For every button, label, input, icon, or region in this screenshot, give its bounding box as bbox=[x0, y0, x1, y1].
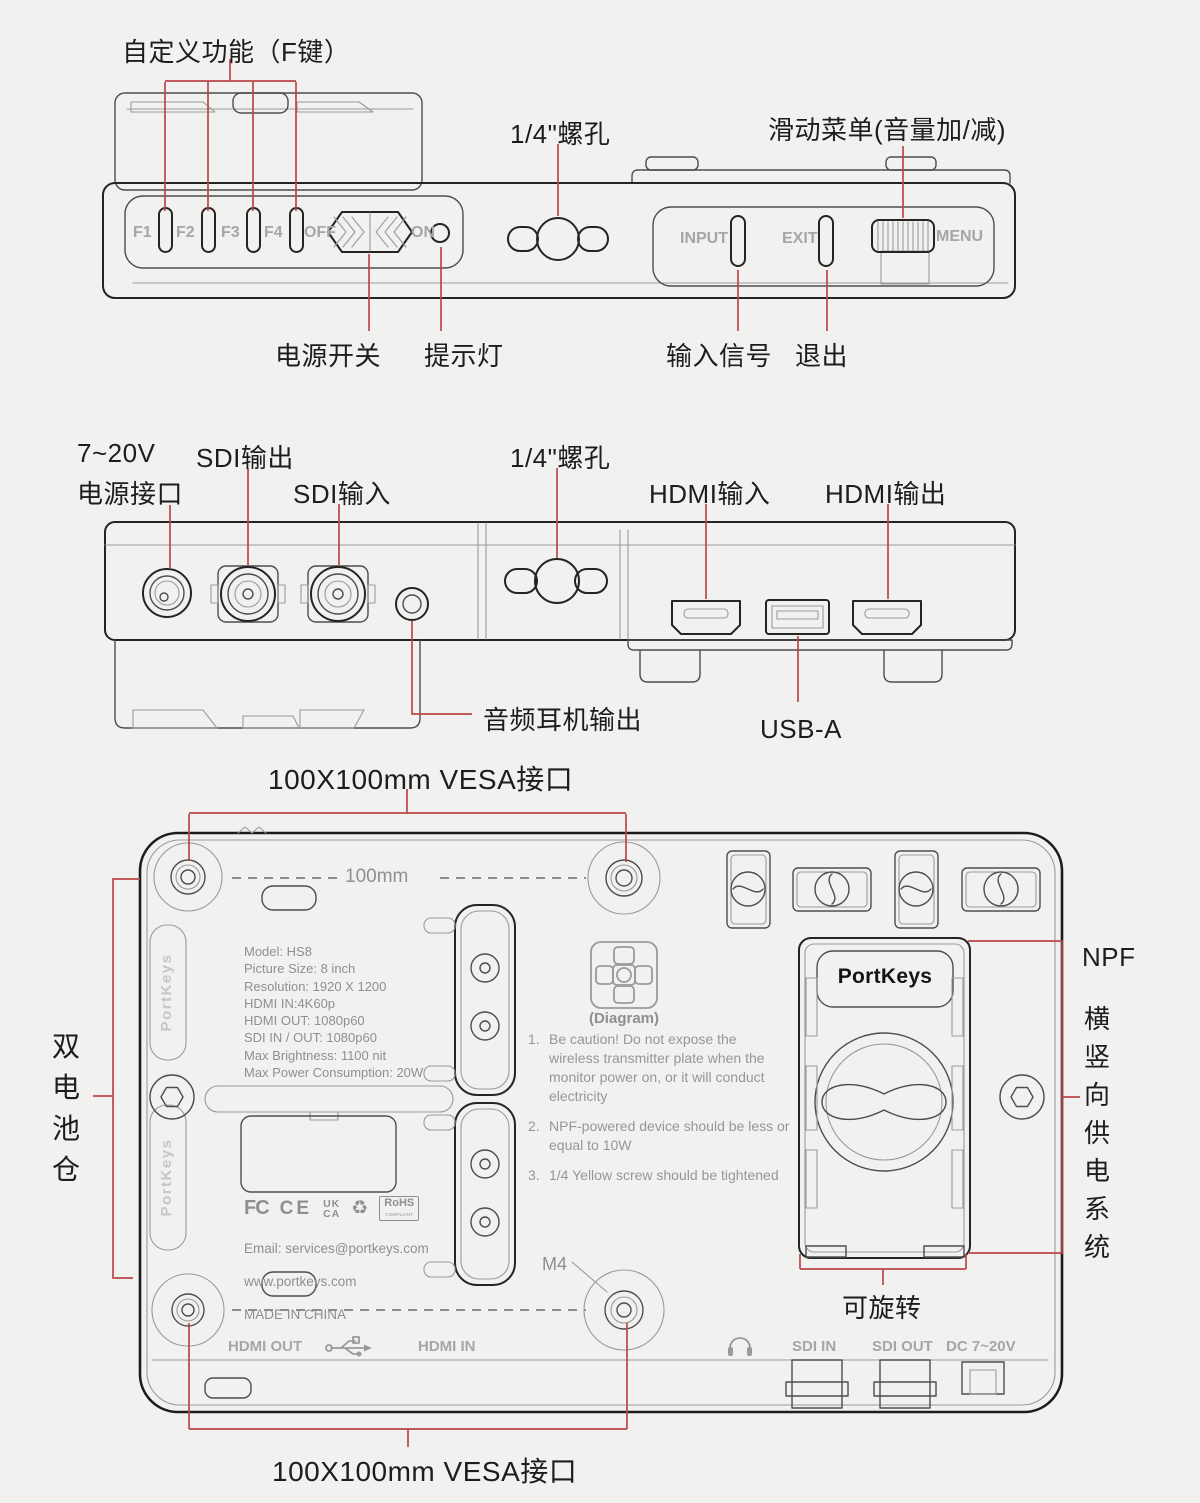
contact-site: www.portkeys.com bbox=[244, 1274, 429, 1291]
f2-label: F2 bbox=[176, 224, 195, 242]
port-sdi-out: SDI OUT bbox=[872, 1338, 933, 1355]
plate-brand-logo: PortKeys bbox=[825, 965, 945, 989]
vesa-hole-bottom-left bbox=[152, 1274, 224, 1346]
port-dc: DC 7~20V bbox=[946, 1338, 1016, 1355]
label-vesa-bottom: 100X100mm VESA接口 bbox=[272, 1450, 577, 1490]
label-headphone: 音频耳机输出 bbox=[483, 700, 642, 737]
note-text: Be caution! Do not expose the wireless t… bbox=[549, 1030, 790, 1106]
spec-line: Max Brightness: 1100 nit bbox=[244, 1047, 423, 1064]
usb-icon bbox=[326, 1337, 372, 1357]
input-button bbox=[731, 216, 745, 266]
contact-email: Email: services@portkeys.com bbox=[244, 1241, 429, 1258]
label-power-port: 电源接口 bbox=[77, 474, 183, 511]
bay-brand-logo: PortKeys bbox=[158, 927, 175, 1058]
rotor-disc bbox=[815, 1033, 953, 1171]
label-battery-bays: 双电池仓 bbox=[50, 1026, 82, 1190]
recycle-icon: ♻ bbox=[351, 1197, 368, 1220]
vesa-top-bracket bbox=[189, 789, 626, 862]
input-label: INPUT bbox=[680, 230, 728, 248]
contact-block: Email: services@portkeys.com www.portkey… bbox=[244, 1224, 429, 1340]
diagram-caption: (Diagram) bbox=[576, 1010, 672, 1027]
label-screw-top: 1/4"螺孔 bbox=[510, 114, 610, 151]
spec-line: Model: HS8 bbox=[244, 943, 423, 960]
ce-mark: CE bbox=[280, 1198, 312, 1220]
menu-label: MENU bbox=[936, 228, 983, 246]
label-screw-mid: 1/4"螺孔 bbox=[510, 438, 610, 475]
quarter-screw-hole-mid bbox=[535, 559, 579, 603]
on-label: ON bbox=[411, 224, 435, 242]
battery-contacts-upper bbox=[455, 905, 515, 1095]
contact-origin: MADE IN CHINA bbox=[244, 1307, 429, 1324]
usb-a-port bbox=[766, 600, 829, 634]
top-foot bbox=[646, 157, 698, 170]
battery-latch-bar bbox=[205, 1086, 453, 1112]
battery-bay-bracket bbox=[93, 879, 140, 1278]
annotation-leader-lines bbox=[93, 59, 1080, 1447]
headphone-line bbox=[412, 621, 472, 714]
spec-line: HDMI OUT: 1080p60 bbox=[244, 1012, 423, 1029]
mid-foot bbox=[640, 650, 700, 682]
bottom-edge-view-art bbox=[105, 522, 1015, 728]
label-vesa-top: 100X100mm VESA接口 bbox=[268, 758, 573, 798]
label-slide-menu: 滑动菜单(音量加/减) bbox=[768, 110, 1006, 147]
exit-button bbox=[819, 216, 833, 266]
mount-slot-horizontal bbox=[962, 868, 1040, 911]
label-indicator: 提示灯 bbox=[424, 336, 504, 373]
vesa-hole-top-left bbox=[154, 843, 222, 911]
top-foot bbox=[886, 157, 936, 170]
f3-label: F3 bbox=[221, 224, 240, 242]
label-input-signal: 输入信号 bbox=[666, 336, 772, 373]
note-number: 1. bbox=[528, 1030, 542, 1106]
label-hdmi-out: HDMI输出 bbox=[825, 474, 946, 511]
label-exit-cn: 退出 bbox=[795, 336, 848, 373]
sdi-in-connector bbox=[311, 567, 365, 621]
wireless-pad-icon bbox=[591, 942, 657, 1008]
spec-line: Max Power Consumption: 20W bbox=[244, 1064, 423, 1081]
quarter-screw-hole-top bbox=[537, 218, 579, 260]
spec-line: SDI IN / OUT: 1080p60 bbox=[244, 1029, 423, 1046]
battery-pack-outline bbox=[115, 93, 422, 190]
label-sdi-in: SDI输入 bbox=[293, 474, 391, 511]
spec-line: HDMI IN:4K60p bbox=[244, 995, 423, 1012]
fcc-mark: FC bbox=[244, 1197, 269, 1220]
battery-contacts-lower bbox=[455, 1103, 515, 1285]
note-text: NPF-powered device should be less or equ… bbox=[549, 1117, 790, 1155]
note-item: 1. Be caution! Do not expose the wireles… bbox=[528, 1030, 790, 1106]
sdi-in-stub bbox=[786, 1360, 848, 1408]
spec-line: Picture Size: 8 inch bbox=[244, 960, 423, 977]
mount-slot-vertical bbox=[727, 851, 770, 928]
label-100mm: 100mm bbox=[345, 866, 440, 888]
hex-screw-right bbox=[1000, 1075, 1044, 1119]
note-item: 3. 1/4 Yellow screw should be tightened bbox=[528, 1166, 790, 1185]
mid-foot bbox=[884, 650, 942, 682]
mount-slot-horizontal bbox=[793, 868, 871, 911]
mount-slot-vertical bbox=[895, 851, 938, 928]
vesa-hole-top-right bbox=[588, 842, 660, 914]
note-item: 2. NPF-powered device should be less or … bbox=[528, 1117, 790, 1155]
sdi-out-connector bbox=[221, 567, 275, 621]
label-m4: M4 bbox=[542, 1254, 567, 1275]
f2-button bbox=[202, 208, 215, 252]
dc-stub bbox=[962, 1362, 1004, 1394]
label-npf-en: NPF bbox=[1082, 942, 1136, 973]
fkeys-bracket bbox=[165, 59, 296, 211]
f3-button bbox=[247, 208, 260, 252]
battery-extension bbox=[115, 640, 420, 728]
port-hdmi-out: HDMI OUT bbox=[228, 1338, 302, 1355]
label-power-v: 7~20V bbox=[77, 438, 155, 469]
certification-marks: FC CE UK CA ♻ RoHS COMPLIANT bbox=[244, 1196, 419, 1221]
label-usb-a: USB-A bbox=[760, 714, 842, 745]
port-hdmi-in: HDMI IN bbox=[418, 1338, 476, 1355]
rotor-wing bbox=[822, 1085, 946, 1120]
f1-label: F1 bbox=[133, 224, 152, 242]
rohs-mark: RoHS COMPLIANT bbox=[379, 1196, 419, 1221]
monitor-diagram-page: 自定义功能（F键） 1/4"螺孔 滑动菜单(音量加/减) 电源开关 提示灯 输入… bbox=[0, 0, 1200, 1503]
label-npf-cn: 横竖向供电系统 bbox=[1082, 1000, 1112, 1266]
ukca-mark: UK CA bbox=[323, 1199, 340, 1219]
f4-label: F4 bbox=[264, 224, 283, 242]
blank-label-area bbox=[241, 1116, 396, 1192]
label-custom-fn: 自定义功能（F键） bbox=[122, 32, 350, 69]
latch-top bbox=[262, 886, 316, 910]
bay-brand-logo: PortKeys bbox=[158, 1107, 175, 1248]
label-hdmi-in: HDMI输入 bbox=[649, 474, 770, 511]
f1-button bbox=[159, 208, 172, 252]
port-sdi-in: SDI IN bbox=[792, 1338, 836, 1355]
spec-line: Resolution: 1920 X 1200 bbox=[244, 978, 423, 995]
spec-block: Model: HS8 Picture Size: 8 inch Resoluti… bbox=[244, 943, 423, 1081]
note-number: 2. bbox=[528, 1117, 542, 1155]
exit-label: EXIT bbox=[782, 230, 818, 248]
sdi-out-stub bbox=[874, 1360, 936, 1408]
headphone-jack bbox=[396, 588, 428, 620]
caution-notes: 1. Be caution! Do not expose the wireles… bbox=[528, 1030, 790, 1196]
note-number: 3. bbox=[528, 1166, 542, 1185]
off-label: OFF bbox=[304, 224, 336, 242]
f4-button bbox=[290, 208, 303, 252]
headphone-icon bbox=[728, 1338, 752, 1356]
note-text: 1/4 Yellow screw should be tightened bbox=[549, 1166, 779, 1185]
label-rotatable: 可旋转 bbox=[842, 1288, 922, 1325]
label-power-switch: 电源开关 bbox=[275, 336, 381, 373]
label-sdi-out: SDI输出 bbox=[196, 438, 294, 475]
